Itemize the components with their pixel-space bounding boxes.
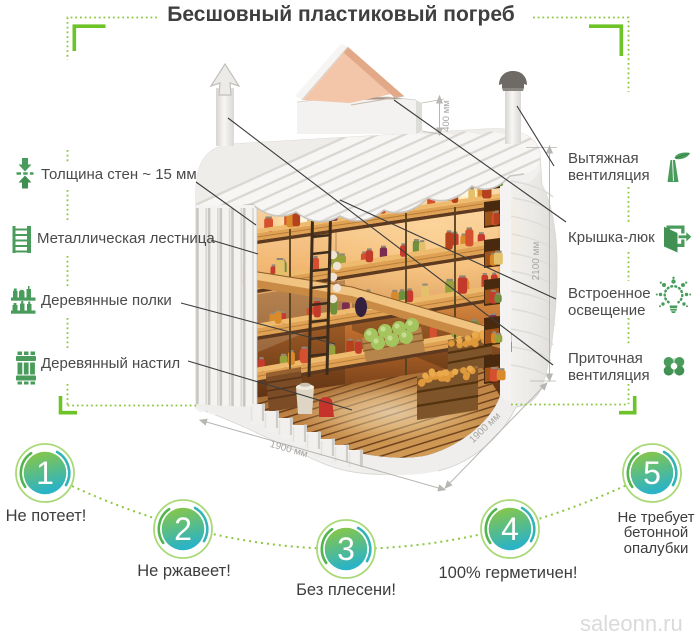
svg-text:2: 2 xyxy=(174,511,192,547)
svg-text:5: 5 xyxy=(643,455,661,491)
svg-text:2100 мм: 2100 мм xyxy=(531,241,542,280)
svg-text:1: 1 xyxy=(36,455,54,491)
svg-text:3: 3 xyxy=(337,531,355,567)
svg-text:4: 4 xyxy=(501,511,519,547)
svg-text:400 мм: 400 мм xyxy=(441,100,452,132)
